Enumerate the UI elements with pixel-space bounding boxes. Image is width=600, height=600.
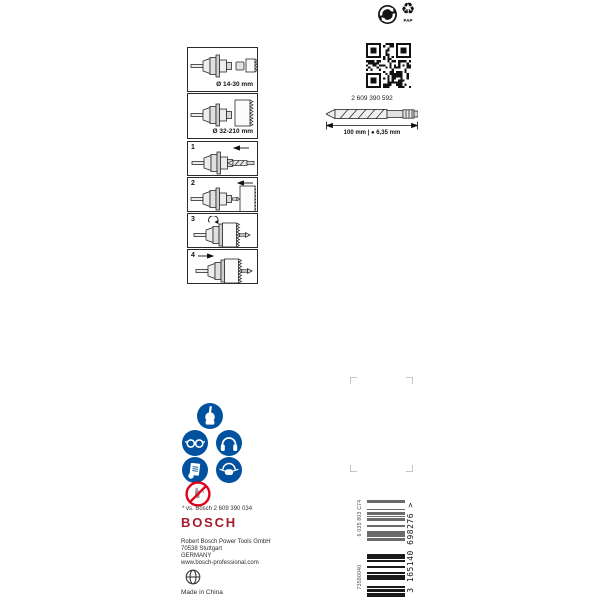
dimension-line — [326, 121, 418, 130]
address-line: www.bosch-professional.com — [181, 560, 271, 567]
adapter-small-holesaw-illustration — [189, 53, 258, 79]
step-4-illustration — [190, 252, 256, 283]
step-box-3: 3 — [187, 213, 258, 248]
step-2-illustration — [190, 180, 256, 211]
crop-mark — [350, 377, 357, 384]
step-box-1: 1 — [187, 141, 258, 176]
crop-mark — [406, 377, 413, 384]
read-manual-icon — [182, 457, 208, 483]
diameter-box-small: Ø 14-30 mm — [187, 47, 258, 92]
diameter-range-label: Ø 32-210 mm — [213, 128, 253, 135]
packaging-back-panel: ♻ 21 PAP Ø 14-30 mm Ø 32-210 mm 1 2 — [0, 0, 600, 600]
ean-number: 3 165140 698276 > — [406, 497, 417, 598]
address-line: GERMANY — [181, 553, 271, 560]
crop-mark — [350, 465, 357, 472]
recycling-pap-icon: ♻ 21 PAP — [397, 1, 419, 29]
bosch-logo: BOSCH — [181, 515, 237, 530]
step-box-4: 4 — [187, 249, 258, 284]
step-3-illustration — [190, 216, 256, 247]
qr-code — [366, 43, 411, 88]
gloves-icon — [197, 403, 223, 429]
prohibition-icon — [185, 481, 211, 507]
drill-bit-illustration — [326, 106, 418, 122]
safety-glasses-icon — [182, 430, 208, 456]
barcode-article-bars — [367, 497, 405, 541]
adapter-large-holesaw-illustration — [189, 98, 258, 130]
step-1-illustration — [190, 144, 256, 175]
diameter-box-large: Ø 32-210 mm — [187, 93, 258, 139]
batch-code: 73590040 — [357, 557, 363, 597]
globe-icon — [185, 569, 201, 585]
diameter-range-label: Ø 14-30 mm — [216, 81, 253, 88]
recycling-material-label: PAP — [397, 19, 419, 23]
order-number: 2 609 390 592 — [326, 95, 418, 102]
crop-mark — [406, 465, 413, 472]
step-box-2: 2 — [187, 177, 258, 212]
address-line: 70538 Stuttgart — [181, 546, 271, 553]
green-dot-icon — [378, 5, 397, 24]
dust-mask-icon — [216, 457, 242, 483]
footnote: * vs. Bosch 2 609 390 034 — [182, 506, 252, 512]
dimension-label: 100 mm | ● 6,35 mm — [318, 130, 426, 136]
ear-protection-icon — [216, 430, 242, 456]
article-code: 6 035 803 C74 — [357, 496, 363, 540]
recycling-number: 21 — [397, 8, 419, 13]
manufacturer-address: Robert Bosch Power Tools GmbH 70538 Stut… — [181, 539, 271, 567]
made-in-label: Made in China — [181, 589, 223, 596]
address-line: Robert Bosch Power Tools GmbH — [181, 539, 271, 546]
barcode-ean-bars — [367, 547, 405, 598]
